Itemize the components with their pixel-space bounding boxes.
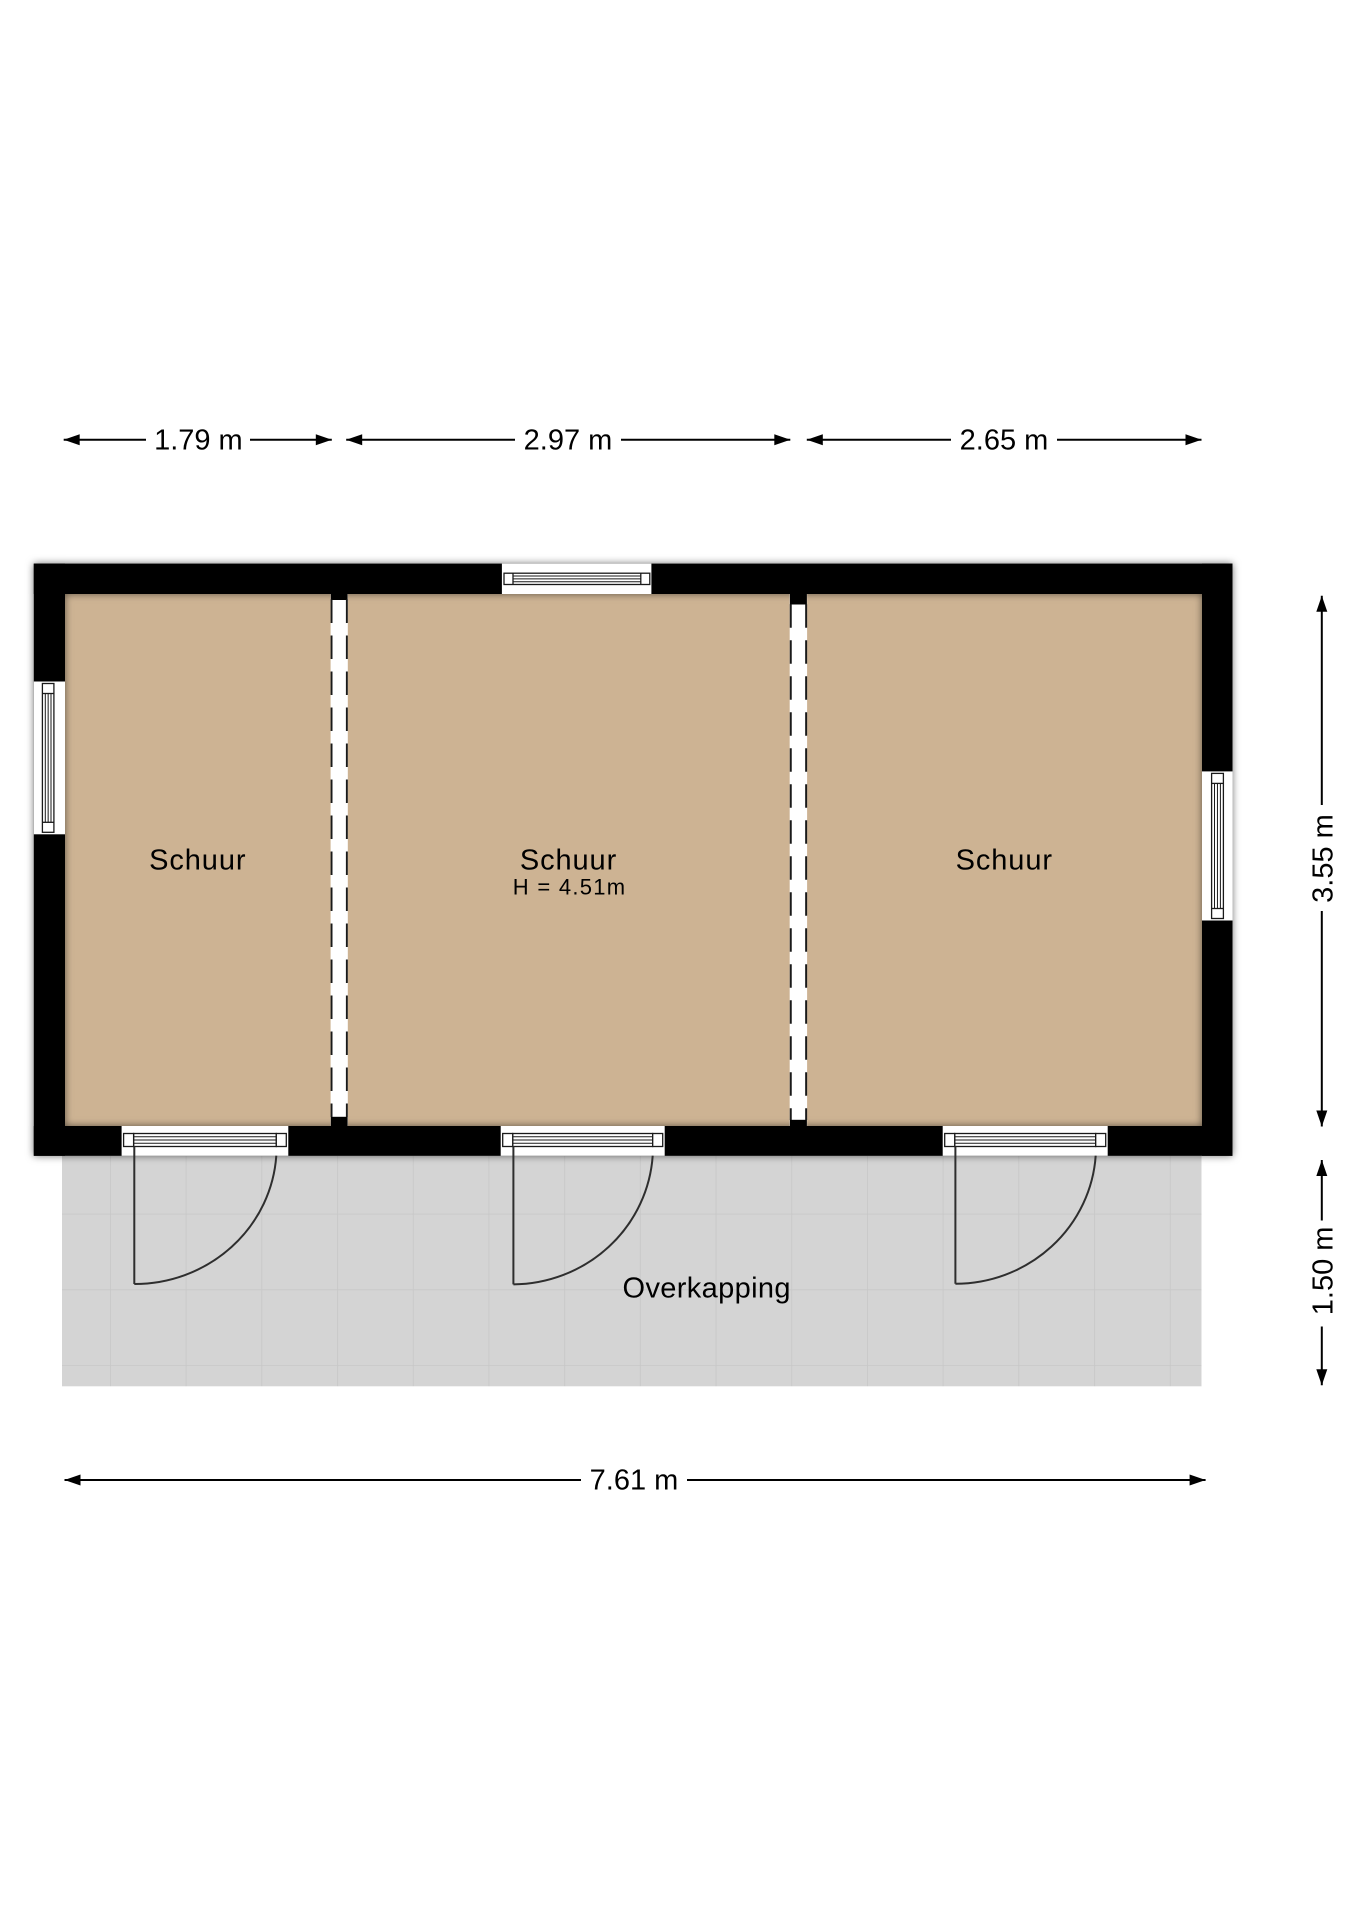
svg-text:Overkapping: Overkapping [623, 1272, 791, 1304]
svg-text:Schuur: Schuur [520, 845, 617, 877]
svg-text:1.50 m: 1.50 m [1307, 1227, 1339, 1316]
svg-text:3.55 m: 3.55 m [1307, 814, 1339, 903]
svg-text:2.65 m: 2.65 m [960, 424, 1049, 456]
svg-text:2.97 m: 2.97 m [524, 424, 613, 456]
svg-text:H = 4.51m: H = 4.51m [513, 875, 627, 900]
svg-text:7.61 m: 7.61 m [590, 1465, 679, 1497]
svg-text:Schuur: Schuur [956, 845, 1053, 877]
svg-text:1.79 m: 1.79 m [154, 424, 243, 456]
svg-text:Schuur: Schuur [149, 845, 246, 877]
